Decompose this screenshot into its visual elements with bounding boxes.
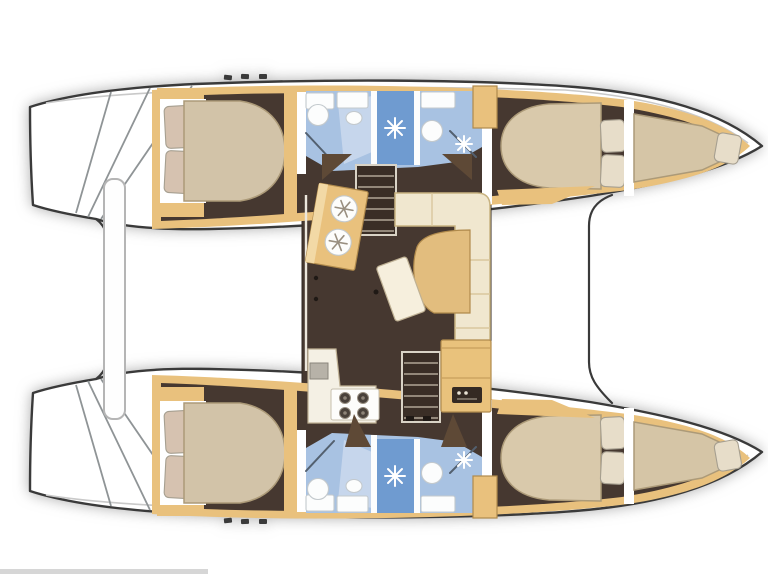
floorplan-canvas xyxy=(0,0,768,576)
starboard-companionway-stairs xyxy=(402,352,440,422)
catamaran-floorplan xyxy=(0,0,768,576)
burner-center xyxy=(343,396,347,400)
floor-handle-dot xyxy=(374,290,379,295)
chart-table xyxy=(441,340,491,412)
panel-dial-icon xyxy=(457,391,461,395)
panel-dial-icon xyxy=(464,391,468,395)
locker-handle-dot xyxy=(314,297,318,301)
locker-handle-dot xyxy=(314,276,318,280)
stair-tread-dot xyxy=(406,416,414,421)
stern-davit-beam xyxy=(104,179,125,419)
foredeck-cross-edge xyxy=(589,195,612,403)
burner-center xyxy=(361,396,365,400)
galley-sink xyxy=(310,363,328,379)
burner-center xyxy=(361,411,365,415)
stair-tread-dot xyxy=(423,416,431,421)
stove-top xyxy=(331,389,379,420)
instrument-panel xyxy=(452,387,482,403)
burner-center xyxy=(343,411,347,415)
scan-artifact-line xyxy=(0,569,208,574)
